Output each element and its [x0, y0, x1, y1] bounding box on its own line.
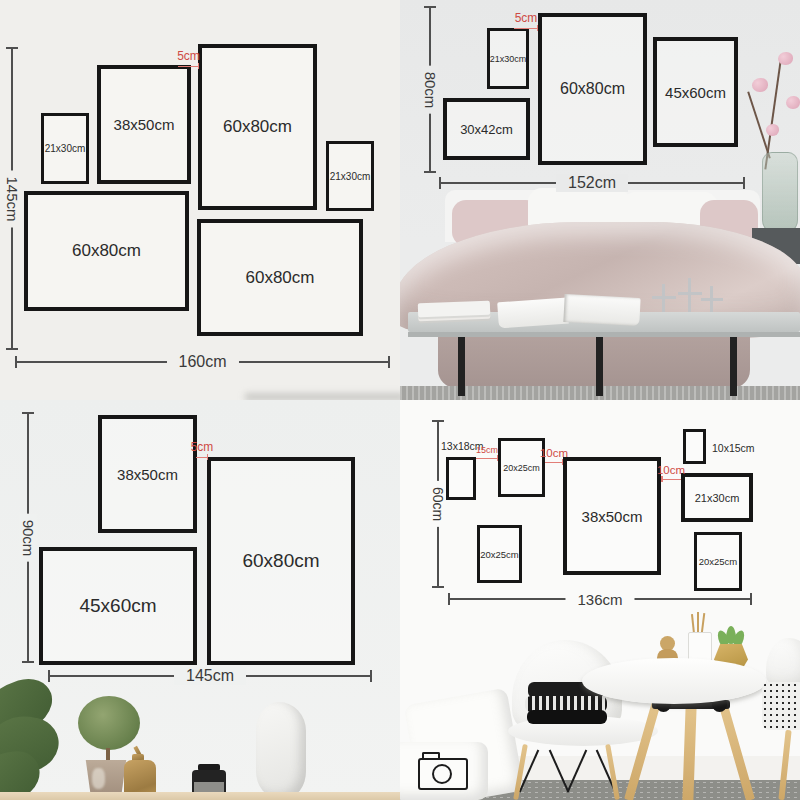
width-dimension-label: 145cm	[174, 667, 246, 685]
width-dimension-label: 152cm	[556, 174, 628, 192]
frame-size-label: 21x30cm	[695, 492, 740, 504]
gallery-wall-size-guide: 145cm 160cm 21x30cm 38x50cm 60x80cm 21x3…	[0, 0, 800, 800]
open-book	[563, 294, 640, 326]
topiary-plant	[78, 696, 140, 750]
frame-size-label: 20x25cm	[699, 556, 738, 567]
frame-size-label: 30x42cm	[460, 122, 513, 137]
width-dimension: 136cm	[448, 592, 752, 606]
gap-marker-10cm: 10cm	[545, 443, 563, 463]
magnolia-bloom	[786, 96, 800, 109]
size-frame-21x30: 21x30cm	[681, 473, 753, 522]
table-shadow	[245, 393, 400, 400]
gap-marker-10cm: 10cm	[661, 461, 681, 480]
camera-lens-icon	[432, 764, 452, 784]
width-dimension: 152cm	[439, 176, 745, 190]
quadrant-top-right: 80cm 152cm 21x30cm 60x80cm 45x60cm 30x42…	[400, 0, 800, 400]
height-dimension-label: 60cm	[430, 481, 446, 527]
frame-size-label: 20x25cm	[480, 549, 519, 560]
candlestick	[688, 278, 691, 312]
width-dimension: 145cm	[48, 669, 372, 683]
size-frame-21x30: 21x30cm	[41, 113, 89, 184]
size-frame-21x30: 21x30cm	[487, 28, 529, 89]
size-frame-45x60: 45x60cm	[653, 37, 738, 147]
camera-flash-icon	[422, 752, 440, 760]
sweater-stack	[527, 710, 607, 724]
size-frame-10x15	[683, 429, 706, 464]
candlestick	[701, 298, 723, 301]
gap-label: 10cm	[657, 464, 685, 476]
size-frame-60x80: 60x80cm	[207, 457, 355, 665]
bench-leg	[730, 336, 737, 396]
size-frame-20x25: 20x25cm	[477, 525, 522, 583]
magnolia-bloom	[752, 78, 768, 92]
pencil	[701, 613, 706, 634]
height-dimension: 90cm	[21, 412, 35, 663]
frame-size-label: 60x80cm	[242, 550, 319, 572]
height-dimension: 80cm	[423, 6, 437, 173]
size-frame-13x18	[446, 457, 476, 500]
size-frame-60x80: 60x80cm	[538, 13, 647, 165]
size-frame-38x50: 38x50cm	[563, 457, 661, 575]
size-frame-38x50: 38x50cm	[98, 415, 197, 533]
bench-leg	[596, 336, 603, 396]
quadrant-top-left: 145cm 160cm 21x30cm 38x50cm 60x80cm 21x3…	[0, 0, 400, 400]
gap-label: 5cm	[177, 49, 200, 63]
gap-label: 5cm	[191, 440, 214, 454]
frame-size-label: 38x50cm	[582, 508, 643, 525]
glass-vase	[762, 152, 798, 234]
frame-size-label: 38x50cm	[117, 466, 178, 483]
size-frame-45x60: 45x60cm	[39, 547, 197, 665]
side-chair-cushion	[762, 682, 800, 730]
frame-size-label: 60x80cm	[246, 268, 315, 288]
width-dimension-label: 160cm	[166, 353, 238, 371]
height-dimension: 145cm	[5, 47, 19, 350]
size-frame-60x80-landscape: 60x80cm	[197, 219, 363, 336]
frame-size-label: 38x50cm	[114, 116, 175, 133]
magazine-stack	[418, 301, 490, 318]
gap-marker-5cm: 5cm	[196, 440, 208, 458]
size-frame-21x30: 21x30cm	[326, 141, 374, 211]
width-dimension: 160cm	[15, 355, 390, 369]
frame-size-label: 60x80cm	[560, 80, 625, 98]
black-canister-label	[194, 782, 224, 792]
gap-marker-5cm: 5cm	[178, 48, 199, 67]
frame-size-label: 60x80cm	[72, 241, 141, 261]
magnolia-bloom	[766, 124, 779, 136]
size-frame-60x80-landscape: 60x80cm	[24, 191, 189, 311]
open-book	[497, 298, 569, 329]
frame-size-label: 45x60cm	[665, 84, 726, 101]
magnolia-bloom	[778, 52, 793, 65]
bench-edge	[408, 332, 800, 337]
height-dimension-label: 145cm	[4, 170, 21, 227]
frame-size-label: 21x30cm	[490, 54, 527, 64]
size-frame-20x25: 20x25cm	[498, 438, 545, 497]
height-dimension-label: 90cm	[20, 513, 37, 562]
topiary-trunk	[106, 748, 110, 762]
size-frame-38x50: 38x50cm	[97, 65, 191, 184]
shelf	[0, 792, 400, 800]
gap-label: 5cm	[515, 11, 538, 25]
white-vase	[256, 702, 306, 798]
frame-size-label: 60x80cm	[223, 117, 292, 137]
bench-leg	[458, 336, 465, 396]
frame-size-label: 21x30cm	[45, 143, 86, 154]
quadrant-bottom-left: 90cm 145cm 38x50cm 60x80cm 45x60cm 5cm	[0, 400, 400, 800]
frame-size-label-10x15: 10x15cm	[712, 442, 755, 454]
gap-label: 10cm	[540, 447, 568, 459]
gap-label: 15cm	[476, 445, 498, 455]
size-frame-20x25: 20x25cm	[694, 532, 742, 591]
frame-size-label: 45x60cm	[79, 595, 156, 617]
frame-size-label: 20x25cm	[503, 463, 540, 473]
candlestick	[678, 292, 702, 295]
gap-marker-15cm: 15cm	[476, 441, 498, 459]
height-dimension-label: 80cm	[422, 65, 439, 114]
frame-size-label: 21x30cm	[330, 171, 371, 182]
size-frame-60x80: 60x80cm	[198, 44, 317, 210]
gap-marker-5cm: 5cm	[514, 11, 538, 29]
pencil	[697, 612, 699, 634]
candlestick	[652, 296, 676, 299]
width-dimension-label: 136cm	[565, 591, 634, 608]
size-frame-30x42: 30x42cm	[443, 98, 530, 160]
dining-table-top	[582, 658, 766, 704]
quadrant-bottom-right: 60cm 136cm 13x18cm 10x15cm 20x25cm 38x50…	[400, 400, 800, 800]
